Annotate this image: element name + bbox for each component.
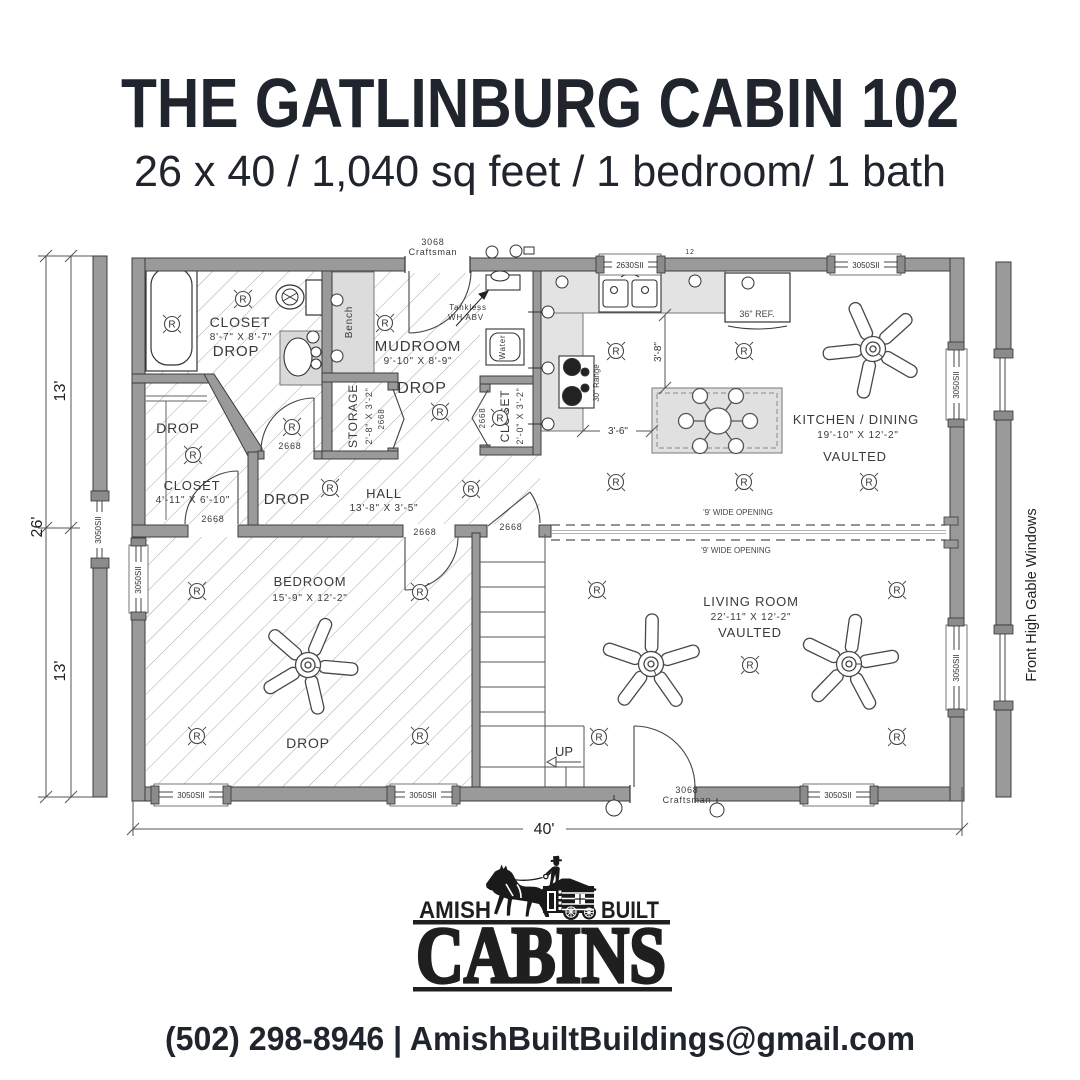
svg-text:2668: 2668 <box>499 522 522 532</box>
svg-text:3068: 3068 <box>675 785 698 795</box>
svg-text:DROP: DROP <box>264 491 311 508</box>
svg-text:3068: 3068 <box>421 237 444 247</box>
svg-text:3050SII: 3050SII <box>852 261 880 270</box>
svg-text:30" Range: 30" Range <box>592 364 601 402</box>
svg-text:'9' WIDE OPENING: '9' WIDE OPENING <box>703 508 773 517</box>
svg-text:CLOSET: CLOSET <box>210 314 271 330</box>
svg-text:12: 12 <box>685 249 694 256</box>
svg-text:UP: UP <box>555 744 573 759</box>
svg-text:DROP: DROP <box>213 343 260 360</box>
svg-text:'9' WIDE OPENING: '9' WIDE OPENING <box>701 546 771 555</box>
svg-text:MUDROOM: MUDROOM <box>375 338 461 355</box>
svg-text:19'-10" X 12'-2": 19'-10" X 12'-2" <box>817 430 899 441</box>
svg-text:15'-9" X 12'-2": 15'-9" X 12'-2" <box>272 593 347 604</box>
svg-text:3'-8": 3'-8" <box>653 342 664 362</box>
svg-text:3050SII: 3050SII <box>952 654 961 682</box>
svg-text:2668: 2668 <box>413 527 436 537</box>
svg-text:3'-6": 3'-6" <box>608 426 628 437</box>
svg-text:2630SII: 2630SII <box>616 261 644 270</box>
svg-text:26': 26' <box>29 517 46 538</box>
svg-text:3050SII: 3050SII <box>952 371 961 399</box>
svg-text:CABINS: CABINS <box>416 912 666 1000</box>
svg-text:2668: 2668 <box>201 514 224 524</box>
svg-text:9'-10" X 8'-9": 9'-10" X 8'-9" <box>384 356 453 367</box>
svg-text:STORAGE: STORAGE <box>346 384 360 448</box>
svg-text:2668: 2668 <box>377 409 386 430</box>
svg-text:DROP: DROP <box>156 420 200 436</box>
svg-text:BEDROOM: BEDROOM <box>274 574 347 589</box>
svg-text:KITCHEN / DINING: KITCHEN / DINING <box>793 412 919 427</box>
svg-text:CLOSET: CLOSET <box>164 478 221 493</box>
svg-text:40': 40' <box>534 821 555 838</box>
svg-text:3050SII: 3050SII <box>94 516 103 544</box>
svg-text:2668: 2668 <box>278 441 301 451</box>
svg-text:13': 13' <box>52 661 69 682</box>
svg-text:Front High Gable Windows: Front High Gable Windows <box>1024 508 1040 681</box>
svg-text:Tankless: Tankless <box>449 303 487 312</box>
svg-text:3050SII: 3050SII <box>824 791 852 800</box>
svg-text:Craftsman: Craftsman <box>409 247 458 257</box>
svg-text:22'-11" X 12'-2": 22'-11" X 12'-2" <box>711 612 792 623</box>
svg-text:THE GATLINBURG CABIN 102: THE GATLINBURG CABIN 102 <box>121 64 959 142</box>
svg-text:DROP: DROP <box>286 735 330 751</box>
svg-text:Water: Water <box>498 334 507 359</box>
svg-text:(502) 298-8946 | AmishBuiltBui: (502) 298-8946 | AmishBuiltBuildings@gma… <box>165 1020 915 1057</box>
svg-text:2668: 2668 <box>478 408 487 429</box>
svg-text:2'-0" X 3'-2": 2'-0" X 3'-2" <box>515 387 525 444</box>
svg-text:Bench: Bench <box>344 306 355 338</box>
svg-text:Craftsman: Craftsman <box>663 795 712 805</box>
svg-text:36" REF.: 36" REF. <box>739 309 774 319</box>
svg-text:8'-7" X 8'-7": 8'-7" X 8'-7" <box>210 332 272 343</box>
svg-text:26 x 40 / 1,040 sq feet / 1 be: 26 x 40 / 1,040 sq feet / 1 bedroom/ 1 b… <box>134 147 946 196</box>
svg-text:VAULTED: VAULTED <box>718 625 782 640</box>
svg-text:4'-11" X 6'-10": 4'-11" X 6'-10" <box>156 495 230 506</box>
svg-text:DROP: DROP <box>397 380 446 397</box>
svg-text:2'-8" X 3'-2": 2'-8" X 3'-2" <box>364 387 374 444</box>
svg-text:VAULTED: VAULTED <box>823 449 887 464</box>
svg-text:LIVING ROOM: LIVING ROOM <box>703 594 798 609</box>
svg-text:3050SII: 3050SII <box>409 791 437 800</box>
svg-text:3050SII: 3050SII <box>177 791 205 800</box>
svg-text:13': 13' <box>52 381 69 402</box>
svg-text:3050SII: 3050SII <box>134 566 143 594</box>
svg-text:13'-8" X 3'-5": 13'-8" X 3'-5" <box>350 503 419 514</box>
svg-text:HALL: HALL <box>366 486 402 501</box>
